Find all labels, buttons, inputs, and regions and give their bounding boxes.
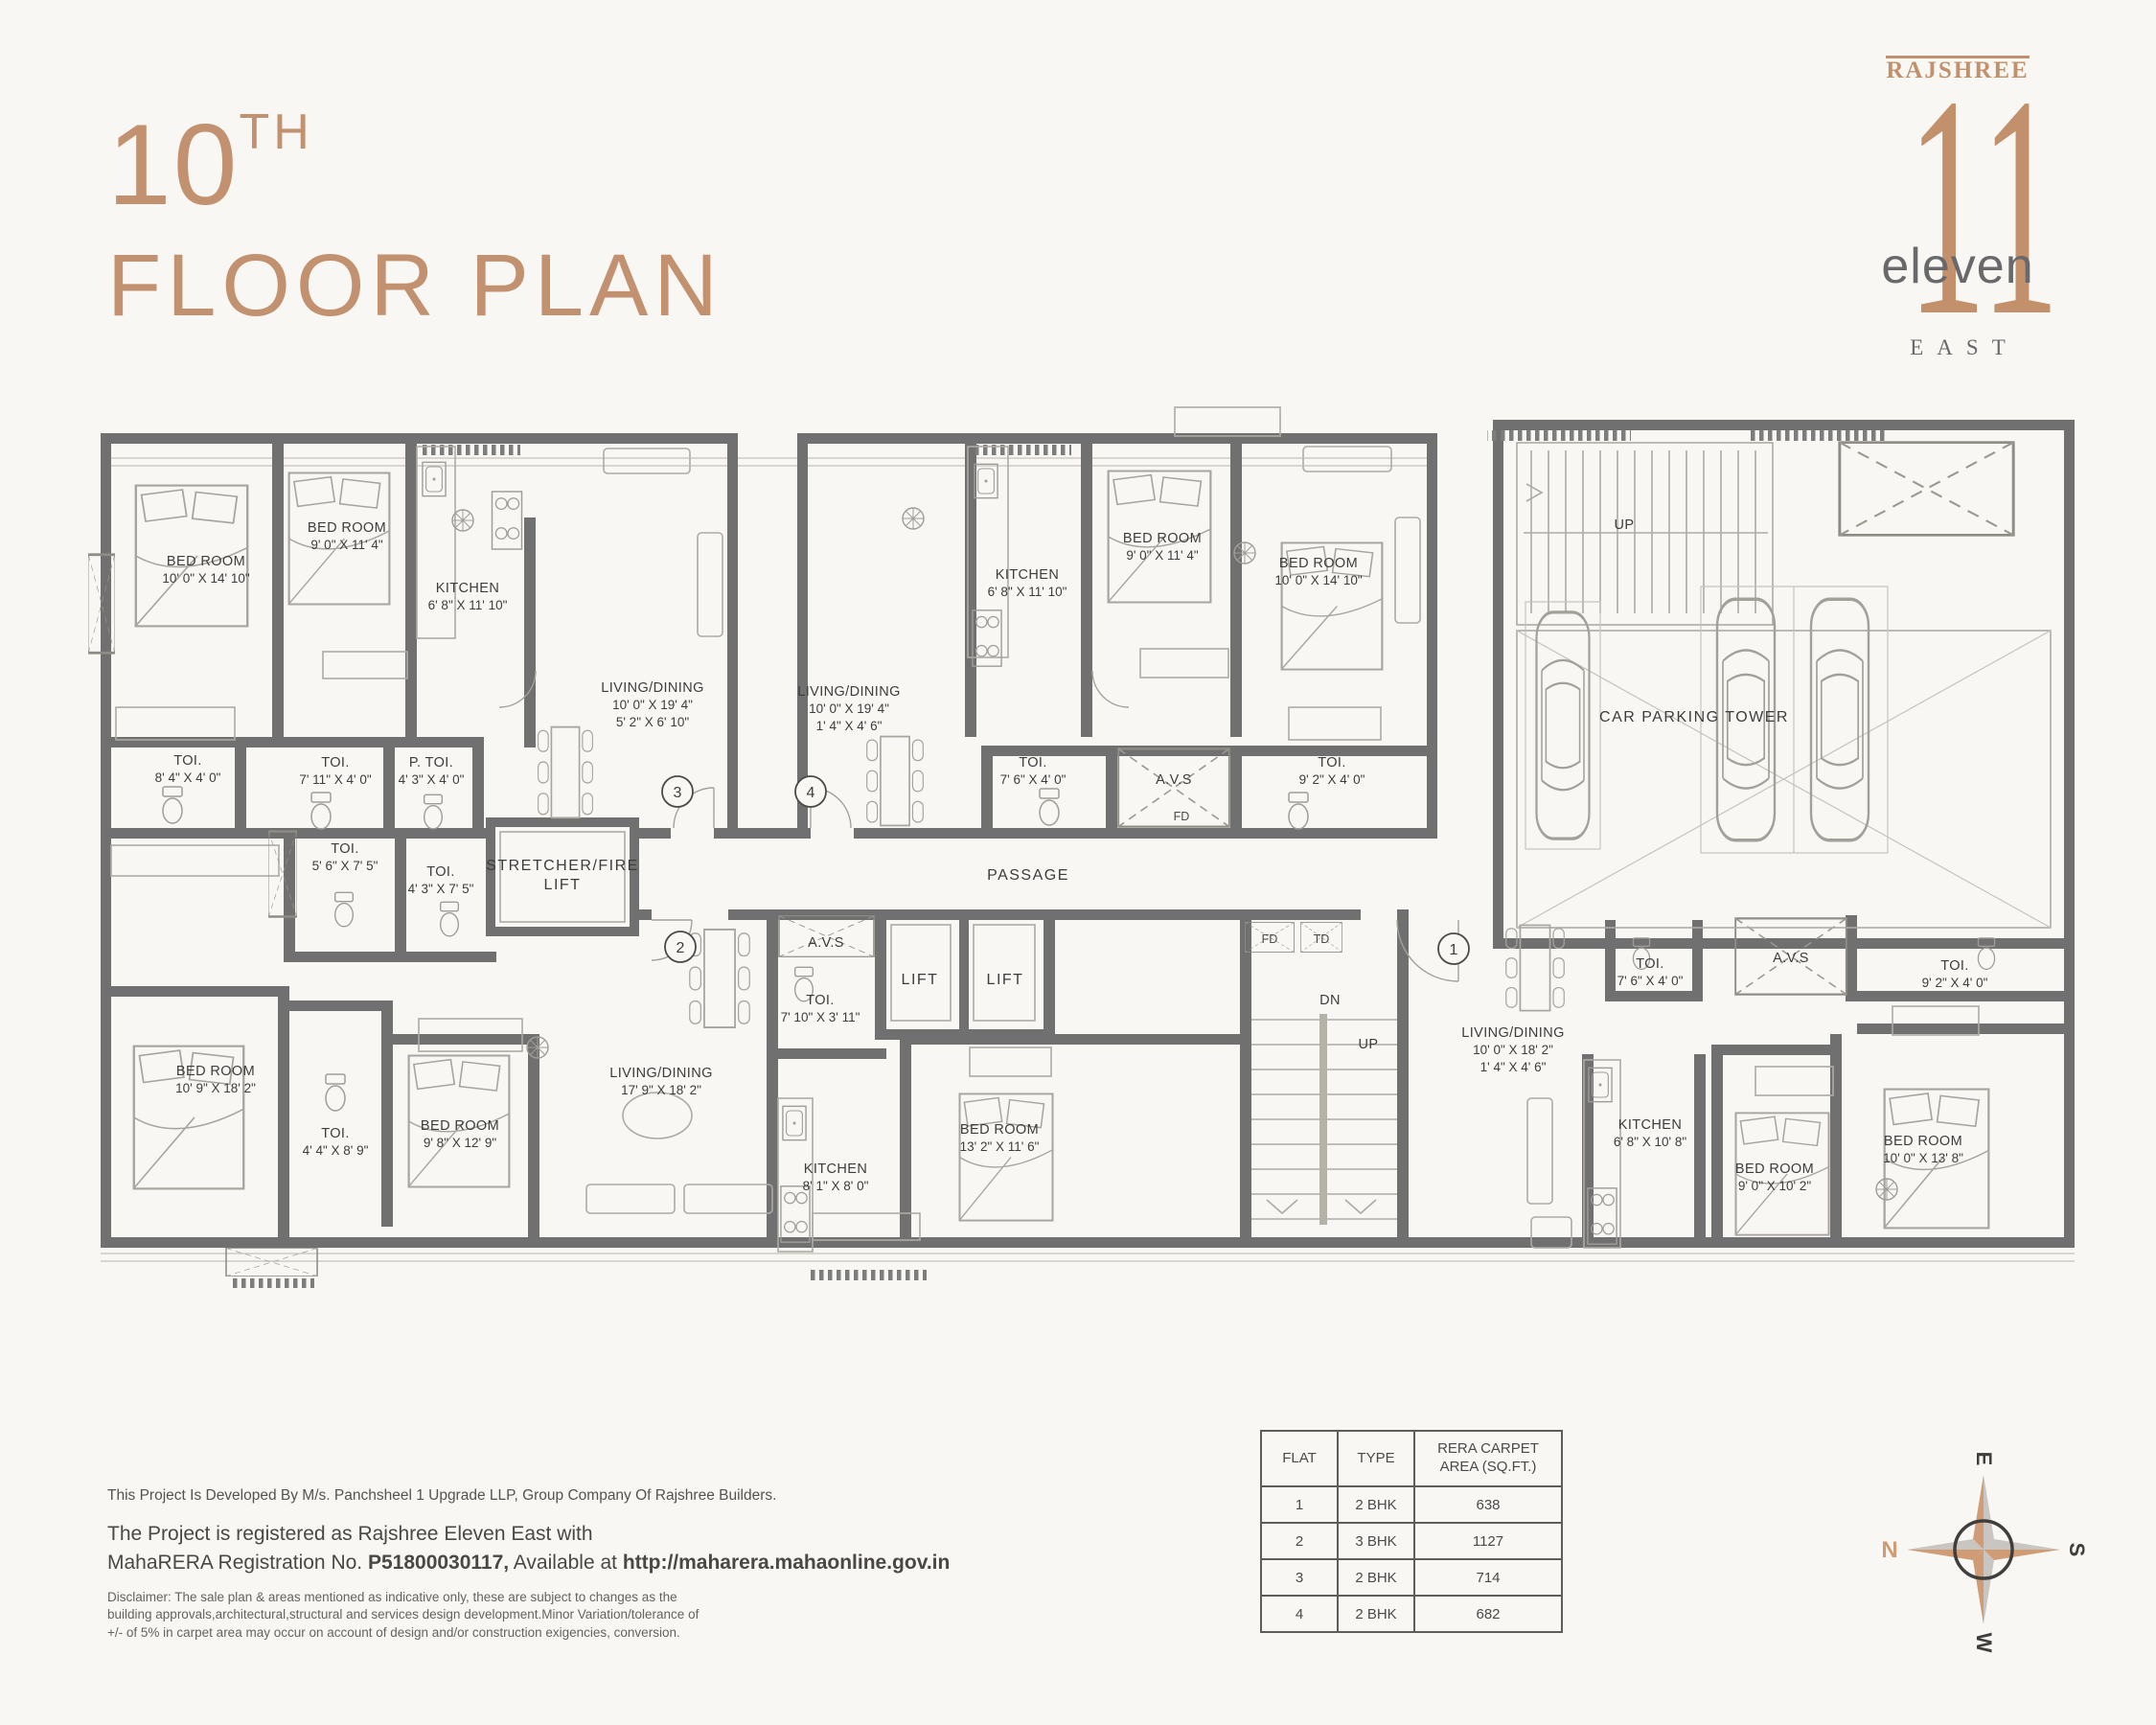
- flat2-bed3-label: BED ROOM: [960, 1122, 1039, 1138]
- sofa: [1303, 447, 1391, 471]
- flat2-toi2-dim: 5' 6" X 7' 5": [312, 859, 378, 873]
- flat3-toi1-label: TOI.: [173, 753, 202, 769]
- flat2-kitchen-label: KITCHEN: [804, 1161, 867, 1177]
- flat4-bed1-dim: 9' 0" X 11' 4": [1126, 548, 1198, 563]
- type-cell: 3 BHK: [1338, 1523, 1414, 1559]
- ceiling-fan-icon: [1876, 1179, 1897, 1200]
- dining-table-icon: [867, 737, 924, 826]
- compass-n-label: N: [1881, 1537, 1897, 1563]
- flat2-living-label: LIVING/DINING: [609, 1066, 713, 1081]
- flat3-ptoi-dim: 4' 3" X 4' 0": [399, 772, 465, 787]
- toilet-wc-icon: [326, 1074, 345, 1111]
- flat1-living-dim2: 1' 4" X 4' 6": [1480, 1060, 1547, 1074]
- ceiling-fan-icon: [527, 1037, 548, 1058]
- flat3-living-label: LIVING/DINING: [601, 680, 704, 696]
- flat4-kitchen-label: KITCHEN: [996, 567, 1059, 583]
- toilet-wc-icon: [163, 787, 182, 823]
- rera-line2: MahaRERA Registration No. P51800030117, …: [107, 1549, 970, 1577]
- floor-plan-title: FLOOR PLAN: [107, 236, 723, 336]
- car-parking-tower: [1517, 443, 2051, 928]
- page-title: 10TH FLOOR PLAN: [107, 107, 723, 336]
- table-row: 4 2 BHK 682: [1261, 1596, 1562, 1632]
- sink-icon: [783, 1106, 806, 1139]
- stretcher-lift-label: STRETCHER/FIRE: [486, 858, 639, 874]
- flat-cell: 1: [1261, 1486, 1338, 1523]
- toilet-wc-icon: [335, 892, 354, 926]
- coffee-table: [623, 1092, 692, 1138]
- floor-plan-poster: { "header": {"number": "10", "ordinal": …: [0, 0, 2156, 1725]
- fd-label: FD: [1262, 932, 1278, 946]
- flat1-bed2-label: BED ROOM: [1884, 1134, 1962, 1149]
- flat1-bed2-dim: 10' 0" X 13' 8": [1883, 1151, 1963, 1165]
- avs-label: A.V.S: [808, 935, 844, 951]
- rera-line1: The Project is registered as Rajshree El…: [107, 1520, 970, 1549]
- compass-rose: N E S W: [1881, 1452, 2089, 1653]
- flat2-toi3-label: TOI.: [426, 864, 455, 880]
- brand-logo: RAJSHREE 11 eleven EAST: [1857, 56, 2058, 331]
- type-cell: 2 BHK: [1338, 1559, 1414, 1596]
- table-header-row: FLAT TYPE RERA CARPET AREA (SQ.FT.): [1261, 1431, 1562, 1486]
- flat3-bed2-dim: 9' 0" X 11' 4": [310, 538, 382, 552]
- parking-duct-icon: [1840, 443, 2013, 536]
- flat1-bed1-label: BED ROOM: [1735, 1161, 1814, 1177]
- flat2-toi4-label: TOI.: [806, 993, 835, 1008]
- flat4-toi2-label: TOI.: [1318, 755, 1346, 770]
- table-row: 1 2 BHK 638: [1261, 1486, 1562, 1523]
- car-icon: [1811, 599, 1869, 840]
- rera-number: P51800030117,: [368, 1552, 509, 1574]
- area-cell: 638: [1414, 1486, 1562, 1523]
- flat4-number: 4: [807, 785, 815, 801]
- type-cell: 2 BHK: [1338, 1486, 1414, 1523]
- walls: [101, 420, 2075, 1248]
- flat3-toi2-dim: 7' 11" X 4' 0": [299, 772, 371, 787]
- flat1-number: 1: [1450, 942, 1458, 958]
- compass-s-label: S: [2065, 1543, 2089, 1557]
- flat2-bed1-dim: 10' 9" X 18' 2": [175, 1081, 256, 1095]
- lift-label: LIFT: [987, 972, 1024, 988]
- flat1-toi2-dim: 9' 2" X 4' 0": [1922, 976, 1988, 990]
- sofa: [586, 1184, 675, 1213]
- flat1-kitchen-dim: 6' 8" X 10' 8": [1614, 1135, 1686, 1149]
- sofa: [604, 448, 690, 473]
- stairs-up-label: UP: [1359, 1037, 1379, 1052]
- flat4-living-dim: 10' 0" X 19' 4": [809, 701, 889, 716]
- dining-table-icon: [690, 930, 749, 1027]
- area-cell: 682: [1414, 1596, 1562, 1632]
- table-row: 2 3 BHK 1127: [1261, 1523, 1562, 1559]
- flat2-bed2-label: BED ROOM: [421, 1118, 499, 1134]
- flat-cell: 4: [1261, 1596, 1338, 1632]
- flat-cell: 3: [1261, 1559, 1338, 1596]
- footer-text-block: This Project Is Developed By M/s. Panchs…: [107, 1487, 970, 1643]
- avs-label: A.V.S: [1156, 772, 1192, 788]
- toilet-wc-icon: [1289, 793, 1308, 829]
- col-flat: FLAT: [1261, 1431, 1338, 1486]
- sofa: [1527, 1098, 1552, 1204]
- deck-icon: [226, 1249, 317, 1276]
- td-label: TD: [1314, 932, 1330, 946]
- parking-up-label: UP: [1615, 517, 1635, 533]
- dining-table-icon: [539, 727, 593, 818]
- flat3-bed2-label: BED ROOM: [308, 520, 386, 536]
- sink-icon: [423, 462, 446, 495]
- rera-mid: Available at: [509, 1552, 623, 1574]
- rera-registration: The Project is registered as Rajshree El…: [107, 1520, 970, 1577]
- floor-number: 10TH: [107, 107, 723, 222]
- flat4-bed2-label: BED ROOM: [1279, 556, 1358, 571]
- logo-word-eleven: eleven: [1846, 238, 2070, 295]
- sofa: [684, 1184, 772, 1213]
- stove-icon: [781, 1186, 810, 1242]
- flat-cell: 2: [1261, 1523, 1338, 1559]
- flat1-toi1-label: TOI.: [1636, 956, 1664, 972]
- ceiling-fan-icon: [1234, 542, 1255, 563]
- stove-icon: [493, 492, 522, 549]
- logo-word-east: EAST: [1857, 335, 2058, 360]
- toilet-wc-icon: [441, 902, 459, 935]
- flat2-number: 2: [677, 940, 685, 956]
- area-cell: 1127: [1414, 1523, 1562, 1559]
- flat3-kitchen-label: KITCHEN: [436, 581, 499, 596]
- compass-e-label: E: [1972, 1452, 1996, 1466]
- flat3-kitchen-dim: 6' 8" X 11' 10": [428, 598, 508, 612]
- table-row: 3 2 BHK 714: [1261, 1559, 1562, 1596]
- flat2-bed1-label: BED ROOM: [176, 1064, 255, 1079]
- compass-w-label: W: [1972, 1633, 1996, 1653]
- disclaimer: Disclaimer: The sale plan & areas mentio…: [107, 1589, 701, 1643]
- flat3-ptoi-label: P. TOI.: [409, 755, 453, 770]
- flat3-number: 3: [674, 785, 682, 801]
- flat3-bed1-dim: 10' 0" X 14' 10": [162, 571, 250, 586]
- floor-ordinal: TH: [239, 104, 312, 160]
- flat1-toi2-label: TOI.: [1940, 958, 1969, 974]
- ceiling-fan-icon: [903, 508, 924, 529]
- stairs-dn-label: DN: [1319, 993, 1341, 1008]
- flat2-toi2-label: TOI.: [331, 841, 359, 857]
- flat3-toi2-label: TOI.: [321, 755, 350, 770]
- flat2-toi4-dim: 7' 10" X 3' 11": [781, 1010, 860, 1024]
- dining-table-icon: [1506, 925, 1565, 1010]
- flat1-toi1-dim: 7' 6" X 4' 0": [1617, 974, 1684, 988]
- avs-label: A.V.S: [1773, 951, 1809, 966]
- stretcher-lift-label2: LIFT: [544, 877, 582, 893]
- sofa: [1395, 517, 1420, 623]
- flat2-bed3-dim: 13' 2" X 11' 6": [960, 1139, 1040, 1154]
- flat4-bed2-dim: 10' 0" X 14' 10": [1274, 573, 1363, 587]
- bed-icon: [960, 1093, 1053, 1220]
- type-cell: 2 BHK: [1338, 1596, 1414, 1632]
- flat1-living-dim: 10' 0" X 18' 2": [1473, 1043, 1553, 1057]
- flat4-toi2-dim: 9' 2" X 4' 0": [1299, 772, 1365, 787]
- toilet-wc-icon: [311, 793, 331, 829]
- fd-label: FD: [1174, 810, 1190, 823]
- flat3-living-dim2: 5' 2" X 6' 10": [616, 715, 689, 729]
- flat2-kitchen-dim: 8' 1" X 8' 0": [803, 1179, 869, 1193]
- flat2-toi1-dim: 4' 4" X 8' 9": [303, 1143, 369, 1158]
- toilet-wc-icon: [424, 794, 443, 828]
- flat1-kitchen-label: KITCHEN: [1618, 1117, 1682, 1133]
- flat4-toi1-dim: 7' 6" X 4' 0": [1000, 772, 1067, 787]
- sofa: [698, 533, 722, 636]
- flat4-kitchen-dim: 6' 8" X 11' 10": [988, 585, 1067, 599]
- car-parking-label: CAR PARKING TOWER: [1599, 709, 1789, 725]
- toilet-wc-icon: [1040, 789, 1059, 825]
- ceiling-fan-icon: [452, 510, 473, 531]
- flat4-living-dim2: 1' 4" X 4' 6": [816, 719, 883, 733]
- area-cell: 714: [1414, 1559, 1562, 1596]
- flat1-living-label: LIVING/DINING: [1461, 1025, 1565, 1041]
- rera-url: http://maharera.mahaonline.gov.in: [623, 1552, 951, 1574]
- flat3-bed1-label: BED ROOM: [167, 554, 245, 569]
- flat2-toi3-dim: 4' 3" X 7' 5": [408, 882, 474, 896]
- flat2-living-dim: 17' 9" X 18' 2": [621, 1083, 701, 1097]
- flat1-bed1-dim: 9' 0" X 10' 2": [1738, 1179, 1811, 1193]
- passage-label: PASSAGE: [987, 867, 1069, 884]
- flat2-bed2-dim: 9' 8" X 12' 9": [424, 1136, 496, 1150]
- sink-icon: [975, 464, 998, 497]
- col-type: TYPE: [1338, 1431, 1414, 1486]
- carpet-area-table: FLAT TYPE RERA CARPET AREA (SQ.FT.) 1 2 …: [1260, 1430, 1563, 1633]
- flat4-toi1-label: TOI.: [1019, 755, 1047, 770]
- flat4-bed1-label: BED ROOM: [1123, 531, 1202, 546]
- flat2-toi1-label: TOI.: [321, 1126, 350, 1141]
- developer-line: This Project Is Developed By M/s. Panchs…: [107, 1487, 970, 1505]
- flat3-toi1-dim: 8' 4" X 4' 0": [155, 770, 221, 785]
- flat3-living-dim: 10' 0" X 19' 4": [612, 698, 693, 712]
- lift-label: LIFT: [902, 972, 939, 988]
- flat4-living-label: LIVING/DINING: [797, 684, 901, 700]
- col-area: RERA CARPET AREA (SQ.FT.): [1414, 1431, 1562, 1486]
- rera-prefix: MahaRERA Registration No.: [107, 1552, 368, 1574]
